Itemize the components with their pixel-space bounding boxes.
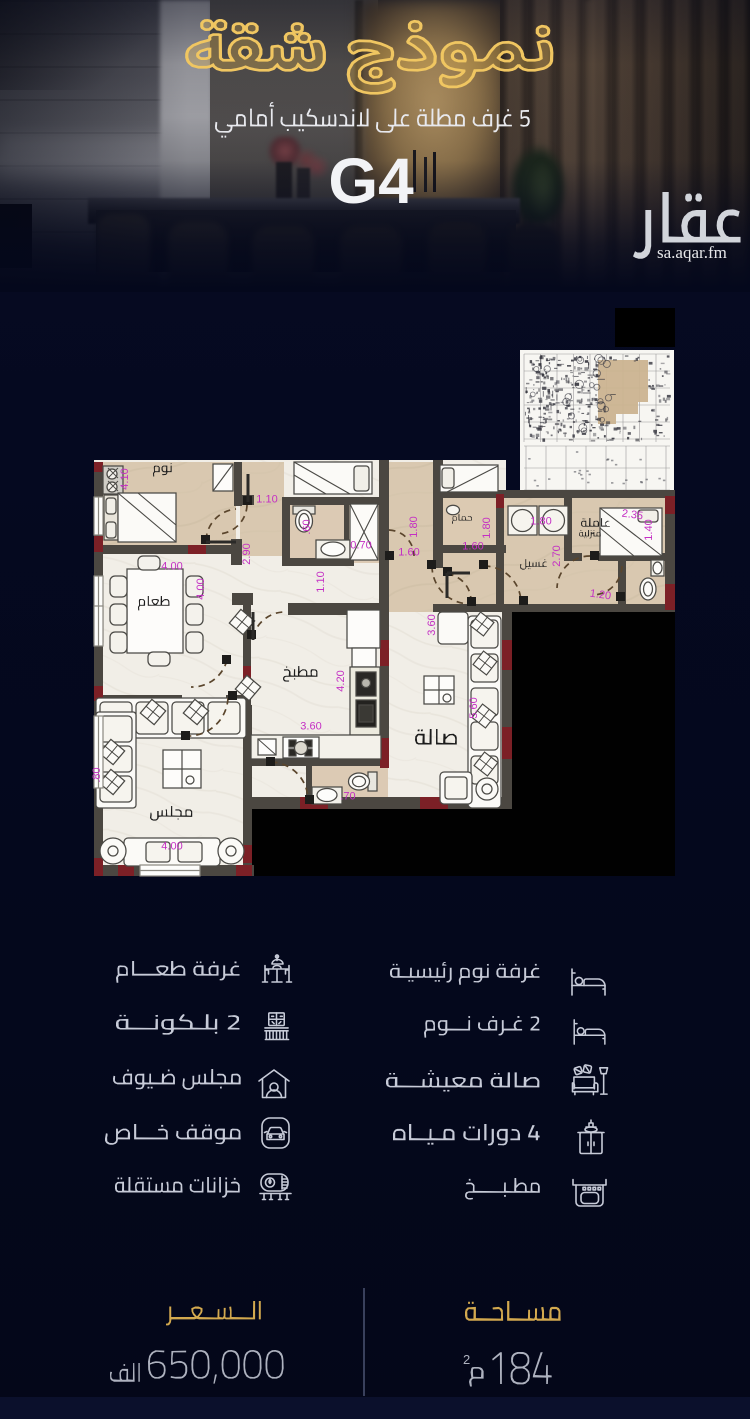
svg-text:1.60: 1.60 — [398, 547, 419, 559]
svg-text:4.00: 4.00 — [195, 578, 207, 599]
svg-text:4.00: 4.00 — [161, 561, 182, 573]
svg-text:5.60: 5.60 — [468, 697, 480, 718]
svg-text:3.60: 3.60 — [300, 721, 321, 733]
svg-text:0.70: 0.70 — [350, 540, 371, 552]
svg-text:1.10: 1.10 — [315, 571, 327, 592]
svg-text:2.90: 2.90 — [241, 543, 253, 564]
svg-text:1.40: 1.40 — [643, 519, 655, 540]
svg-text:1.60: 1.60 — [462, 541, 483, 553]
svg-text:2.70: 2.70 — [551, 545, 563, 566]
svg-text:.60: .60 — [301, 519, 313, 534]
svg-text:4.10: 4.10 — [119, 468, 131, 489]
svg-text:3.60: 3.60 — [426, 614, 438, 635]
svg-text:1.80: 1.80 — [481, 517, 493, 538]
svg-text:.80: .80 — [92, 767, 103, 782]
svg-text:.70: .70 — [340, 791, 355, 803]
svg-text:1.10: 1.10 — [256, 494, 277, 506]
svg-text:4.20: 4.20 — [335, 670, 347, 691]
svg-text:1.80: 1.80 — [408, 516, 420, 537]
svg-text:1.80: 1.80 — [530, 516, 551, 528]
svg-text:4.00: 4.00 — [161, 841, 182, 853]
